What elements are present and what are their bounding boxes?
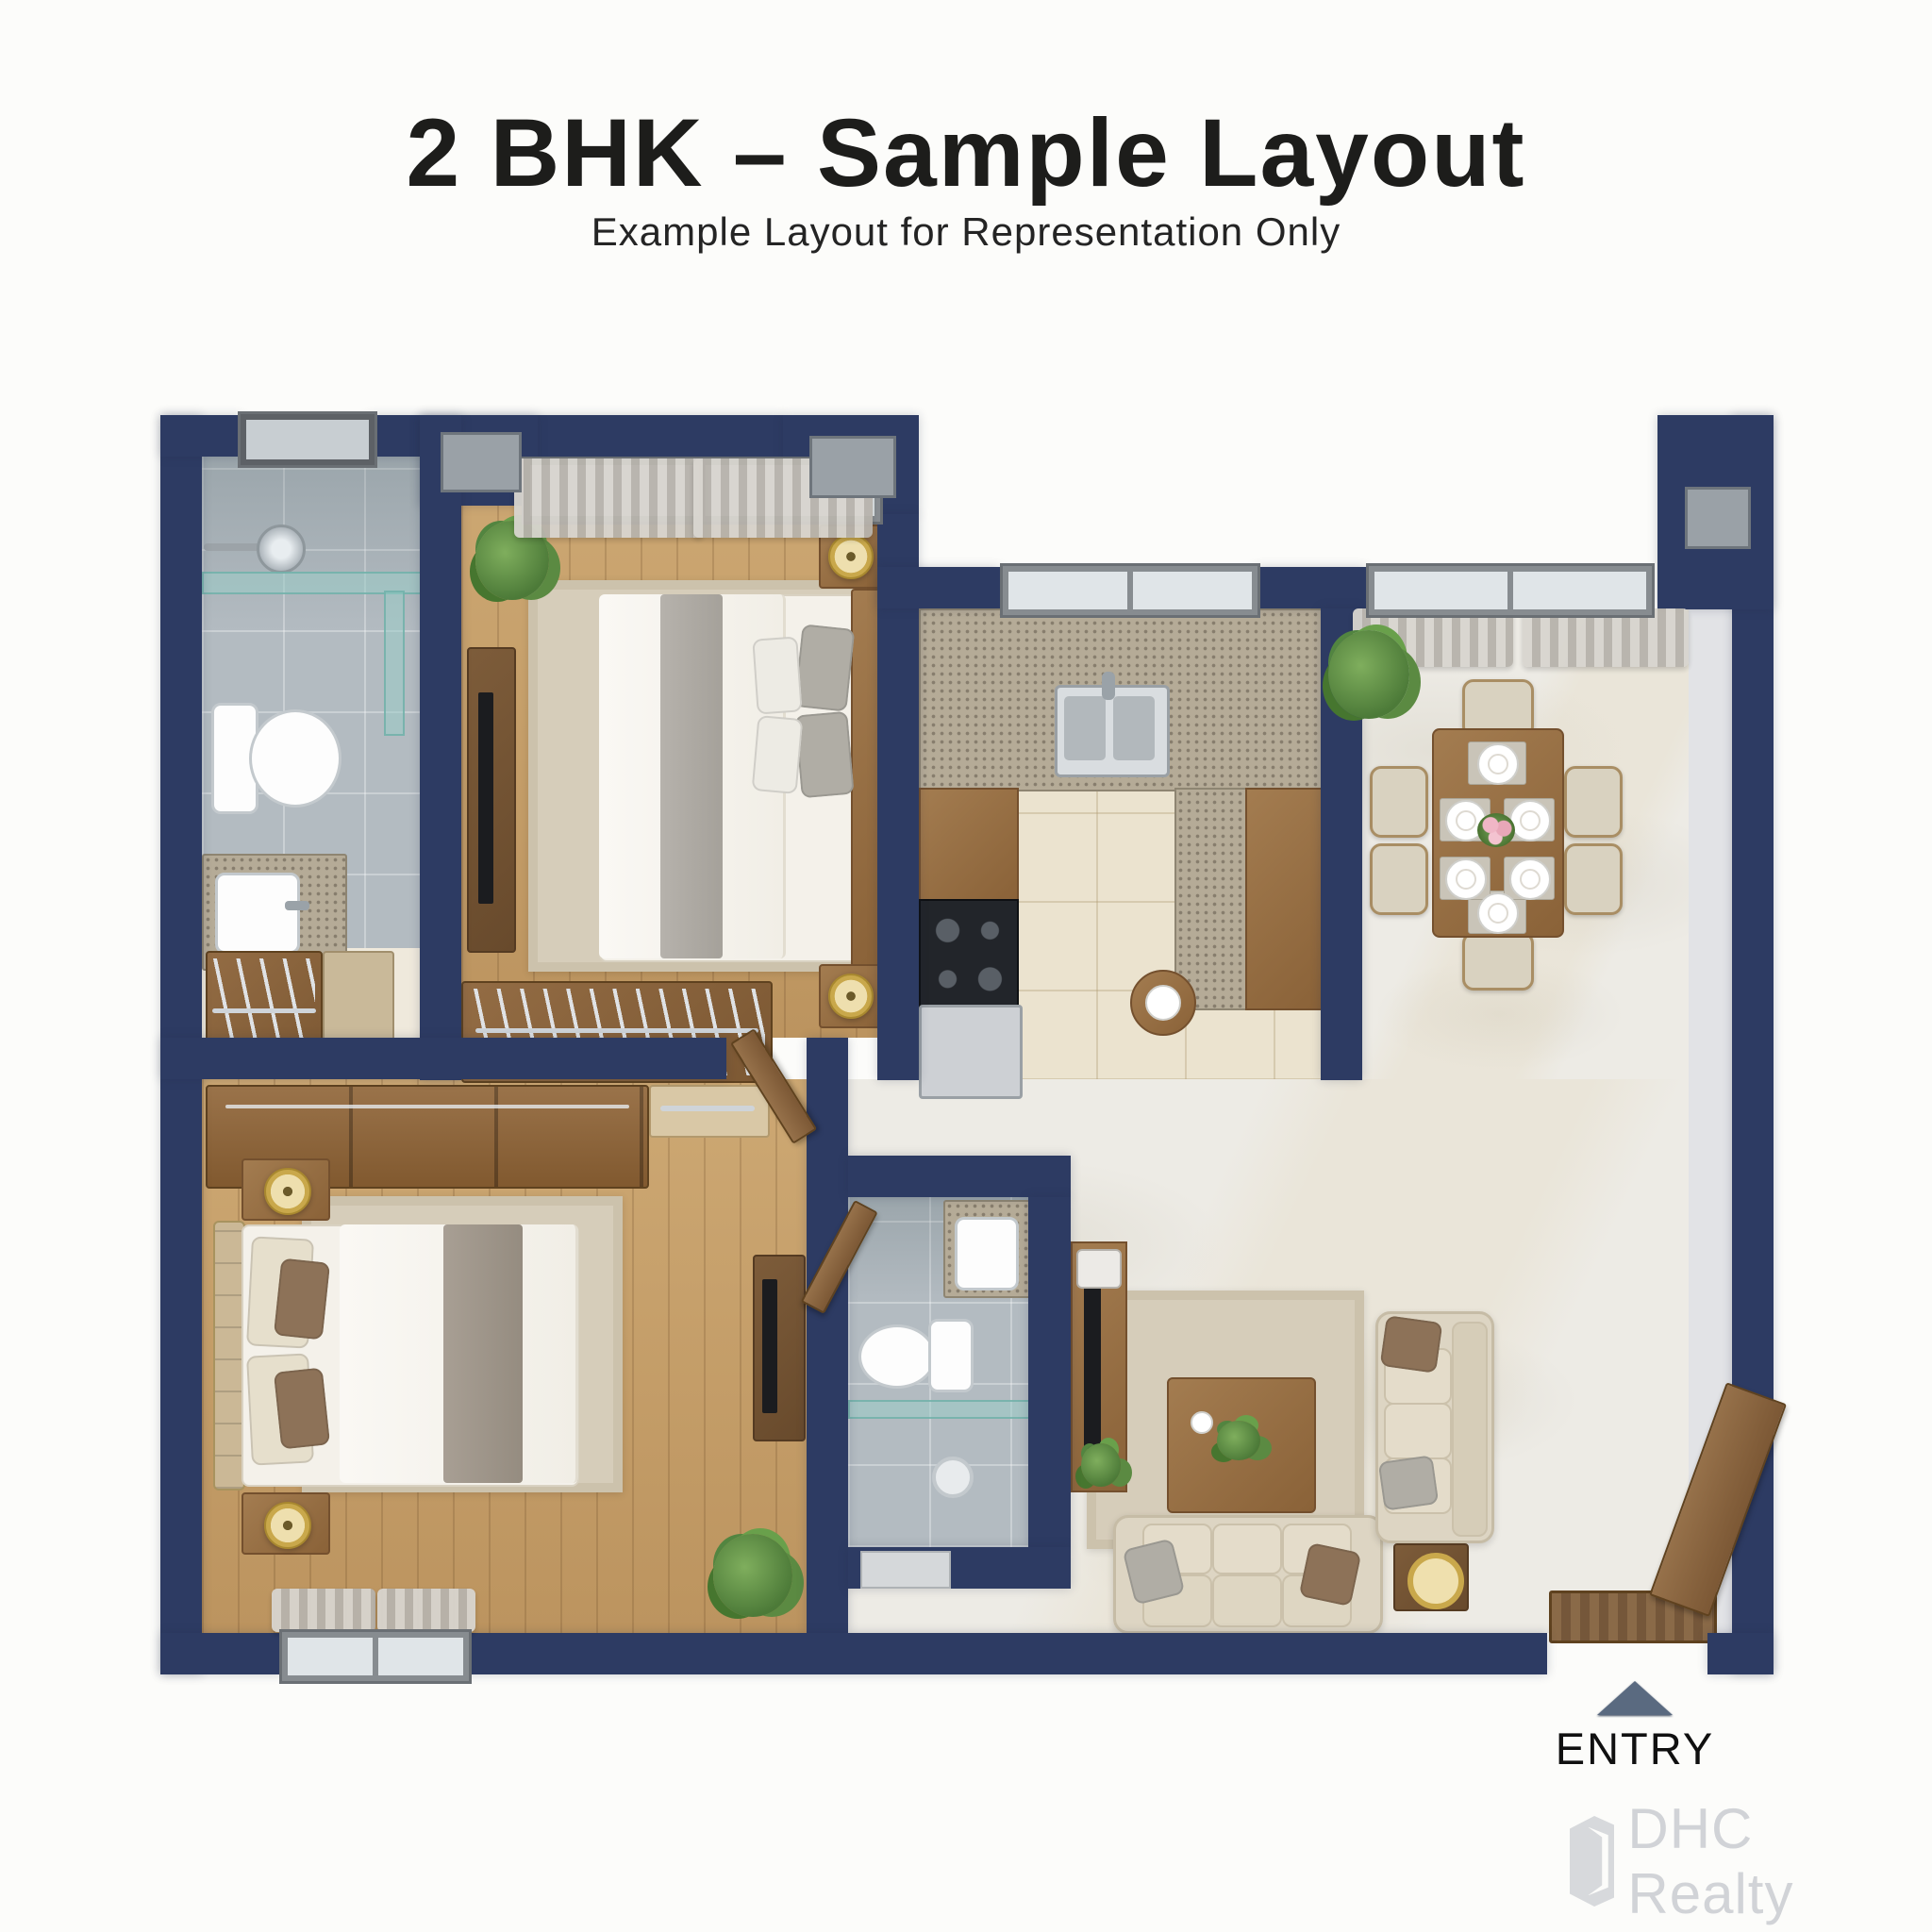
wall [160, 1038, 726, 1079]
dining-chair-icon [1564, 843, 1623, 915]
plate-icon [1145, 985, 1181, 1021]
window-icon [238, 411, 377, 468]
dining-chair-icon [1462, 932, 1534, 991]
shower-drain-icon [932, 1457, 974, 1498]
faucet-icon [285, 901, 309, 910]
bed-throw-blanket [443, 1224, 523, 1483]
wall [160, 1633, 283, 1674]
dining-chair-icon [1370, 843, 1428, 915]
plant-icon [1081, 1443, 1121, 1487]
curtain-icon [514, 458, 703, 538]
window-icon [1366, 563, 1655, 618]
plate-icon [1477, 743, 1519, 785]
door-threshold [860, 1551, 951, 1589]
entry-label: ENTRY [1541, 1723, 1729, 1774]
wall [462, 1633, 1547, 1674]
pillow-icon [274, 1368, 330, 1450]
toilet-icon [249, 709, 341, 808]
wall [160, 415, 241, 457]
stove-icon [919, 899, 1019, 1008]
pillow-icon [752, 715, 804, 794]
cup-icon [1191, 1411, 1213, 1434]
closet-shelf [323, 951, 394, 1049]
fridge-icon [919, 1005, 1023, 1099]
tv-icon [478, 692, 493, 904]
plate-icon [1509, 858, 1551, 900]
pillow-icon [1380, 1315, 1443, 1374]
kitchen-counter [1174, 788, 1249, 1010]
wall [1028, 1197, 1071, 1547]
pillow-icon [794, 711, 854, 799]
dining-chair-icon [1564, 766, 1623, 838]
wall [1707, 1633, 1774, 1674]
faucet-icon [1102, 672, 1115, 700]
pillow-icon [752, 636, 802, 714]
brand-watermark: DHC Realty [1570, 1796, 1932, 1926]
wall [877, 567, 1000, 608]
kitchen-cabinet [919, 788, 1019, 903]
plate-icon [1509, 800, 1551, 841]
pillow-icon [794, 624, 856, 711]
duct-niche-inner [441, 432, 522, 492]
kitchen-sink-basin [1064, 696, 1106, 760]
plant-icon [1328, 630, 1409, 719]
gold-tray-icon [1407, 1553, 1464, 1609]
bed-throw-blanket [660, 594, 723, 958]
duct-niche-inner [1685, 487, 1751, 549]
brand-name: DHC Realty [1627, 1796, 1932, 1926]
flower-icon [1477, 813, 1515, 847]
window-icon [279, 1629, 472, 1684]
kitchen-tall-cabinet [1245, 788, 1324, 1010]
lamp-icon [264, 1168, 311, 1215]
plant-icon [1217, 1421, 1260, 1460]
building-logo-icon [1570, 1816, 1614, 1907]
floorplan-poster: 2 BHK – Sample Layout Example Layout for… [0, 0, 1932, 1932]
glass-partition-icon [384, 591, 405, 736]
tv-icon [762, 1279, 777, 1413]
sink-icon [955, 1217, 1019, 1291]
window-icon [1000, 563, 1260, 618]
pillow-icon [1378, 1455, 1440, 1511]
wall [848, 1156, 1071, 1197]
dining-chair-icon [1370, 766, 1428, 838]
shower-icon [257, 525, 306, 574]
toilet-tank-icon [928, 1319, 974, 1392]
hanging-rod-bar [660, 1106, 755, 1111]
pillow-icon [274, 1258, 330, 1341]
speaker-icon [1076, 1249, 1122, 1289]
tv-icon [1084, 1281, 1101, 1449]
wall [1255, 567, 1366, 608]
pillow-icon [1299, 1542, 1362, 1607]
duct-niche-inner [809, 436, 896, 498]
lamp-icon [264, 1502, 311, 1549]
page-title: 2 BHK – Sample Layout [0, 98, 1932, 208]
plate-icon [1477, 892, 1519, 934]
curtain-icon [272, 1589, 375, 1632]
toilet-icon [858, 1324, 936, 1389]
plate-icon [1445, 858, 1487, 900]
page-subtitle: Example Layout for Representation Only [0, 209, 1932, 255]
lamp-icon [828, 534, 874, 579]
wall [420, 415, 461, 1080]
sink-icon [215, 873, 300, 954]
plant-icon [713, 1534, 792, 1617]
curtain-icon [377, 1589, 475, 1632]
tv-console-icon [753, 1255, 806, 1441]
lamp-icon [828, 974, 874, 1019]
kitchen-sink-basin [1113, 696, 1155, 760]
bed-headboard [213, 1221, 245, 1491]
hanging-rod [649, 1085, 770, 1138]
glass-partition-icon [848, 1400, 1032, 1419]
entry-arrow-icon up-triangle-icon [1597, 1681, 1673, 1715]
